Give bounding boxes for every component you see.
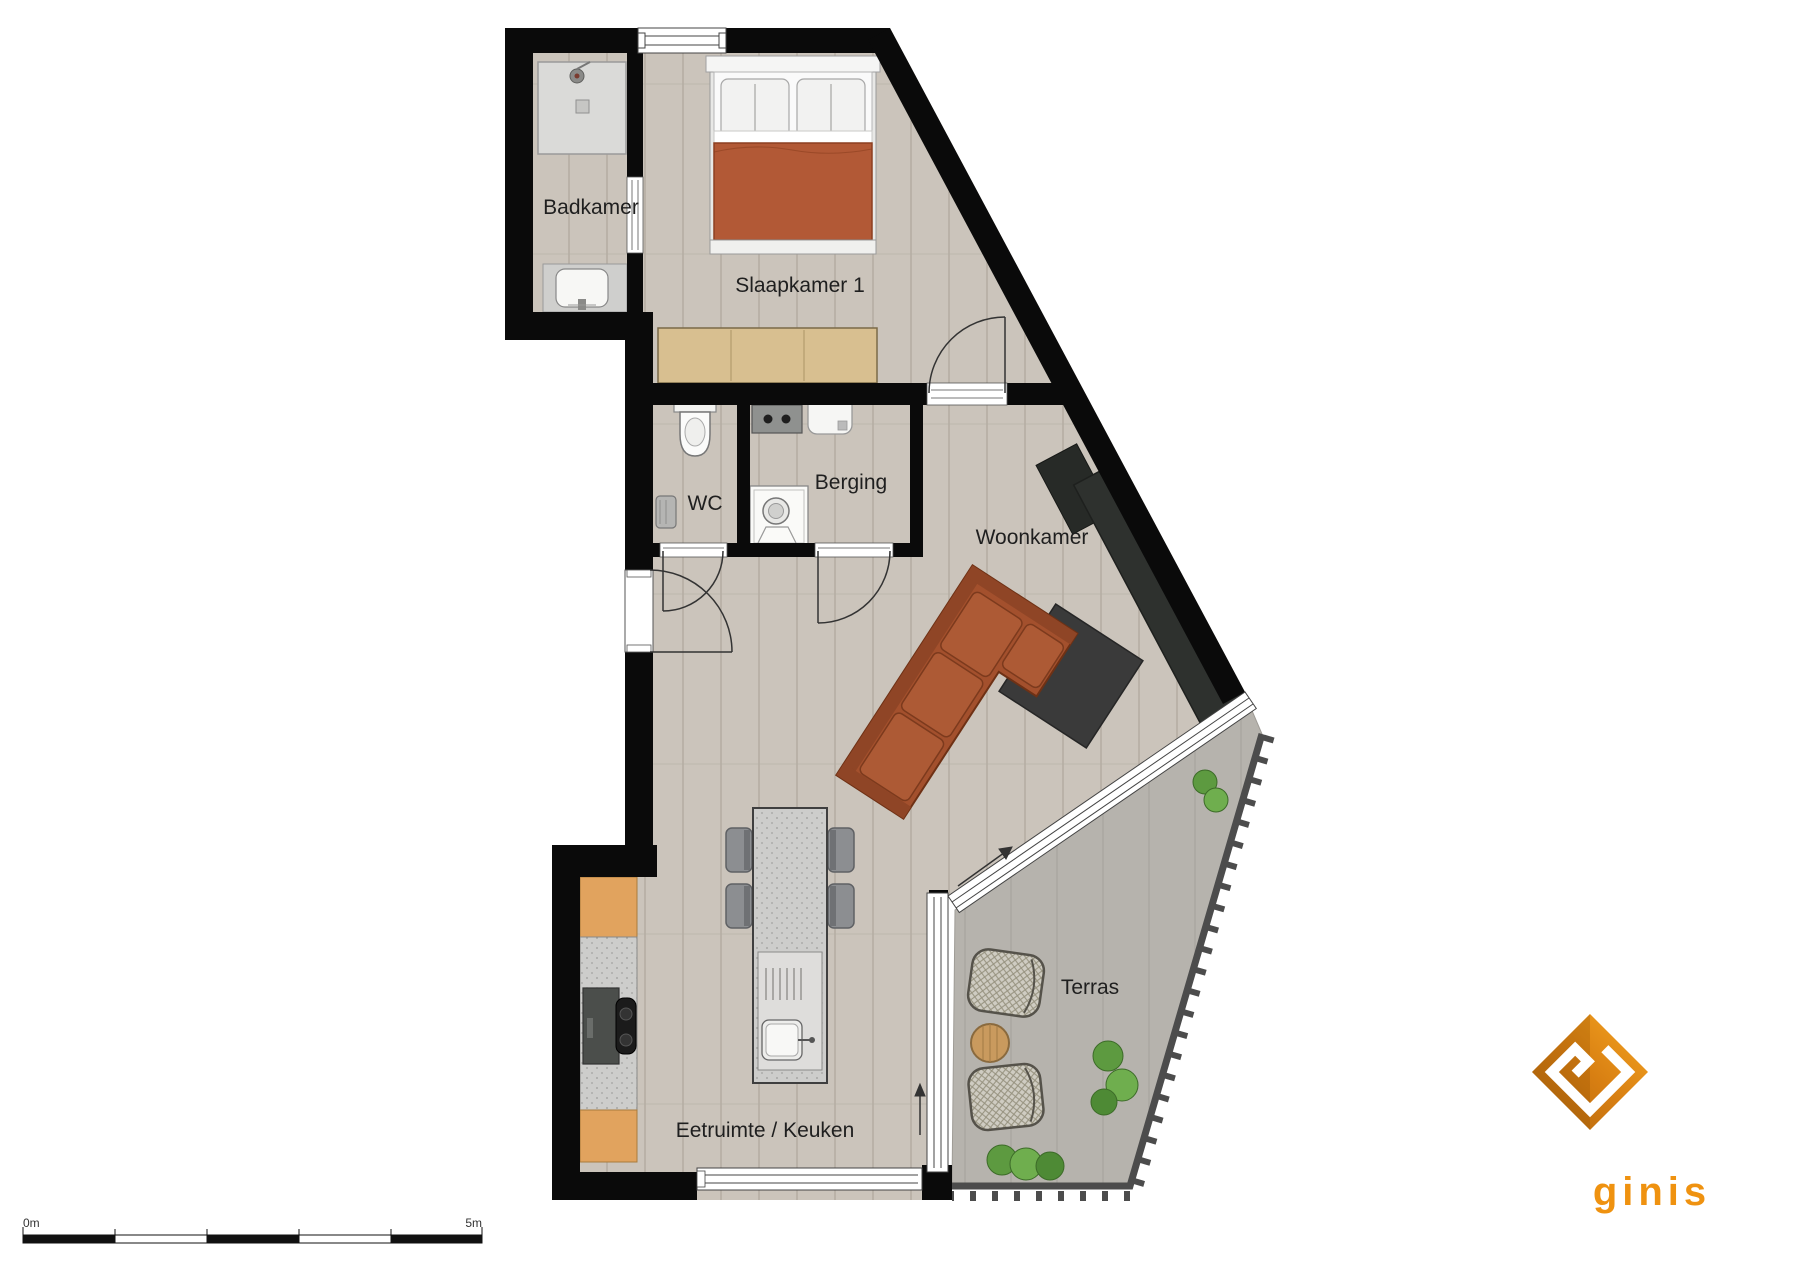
scale-start-label: 0m <box>23 1216 40 1230</box>
sliding-door-icon <box>927 893 948 1172</box>
dining-chair-icon <box>828 884 854 928</box>
ginis-wordmark: ginis <box>1593 1170 1711 1214</box>
room-label-berging: Berging <box>815 471 887 494</box>
bed-icon <box>706 56 880 254</box>
room-label-badkamer: Badkamer <box>543 196 639 219</box>
terrace-chair-icon <box>967 1062 1045 1131</box>
window-icon <box>638 28 726 53</box>
room-label-slaapkamer: Slaapkamer 1 <box>735 274 865 297</box>
room-label-terras: Terras <box>1061 976 1119 999</box>
radiator-icon <box>656 496 676 528</box>
floor-plan-canvas: Badkamer Slaapkamer 1 WC Berging Woonkam… <box>0 0 1800 1274</box>
bathroom-sink-icon <box>543 264 627 312</box>
scale-end-label: 5m <box>465 1216 482 1230</box>
terrace-chair-icon <box>966 947 1046 1018</box>
dining-chair-icon <box>828 828 854 872</box>
kitchen-counter-icon <box>580 877 637 1162</box>
room-label-wc: WC <box>688 492 723 515</box>
storage-counter-icon <box>752 405 802 433</box>
dining-chair-icon <box>726 884 752 928</box>
washing-machine-icon <box>750 486 808 547</box>
dining-chair-icon <box>726 828 752 872</box>
room-label-woonkamer: Woonkamer <box>976 526 1089 549</box>
cooktop-icon <box>616 998 636 1054</box>
room-label-eetruimte: Eetruimte / Keuken <box>676 1119 855 1142</box>
wardrobe-icon <box>658 328 877 383</box>
shower-icon <box>538 62 626 154</box>
window-icon <box>697 1168 922 1190</box>
floor-plan-page: Badkamer Slaapkamer 1 WC Berging Woonkam… <box>0 0 1800 1274</box>
terrace-table-icon <box>971 1024 1009 1062</box>
stove-icon <box>583 988 619 1064</box>
